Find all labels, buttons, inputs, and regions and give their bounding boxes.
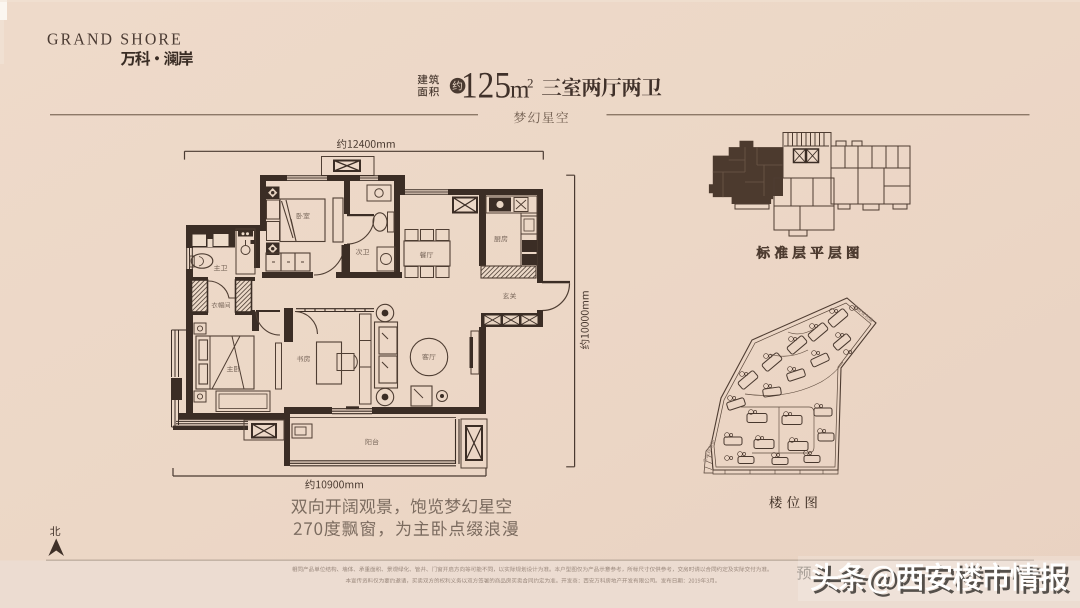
svg-text:2: 2: [527, 76, 534, 91]
svg-text:GRAND SHORE: GRAND SHORE: [47, 30, 183, 49]
svg-text:125: 125: [461, 66, 511, 107]
